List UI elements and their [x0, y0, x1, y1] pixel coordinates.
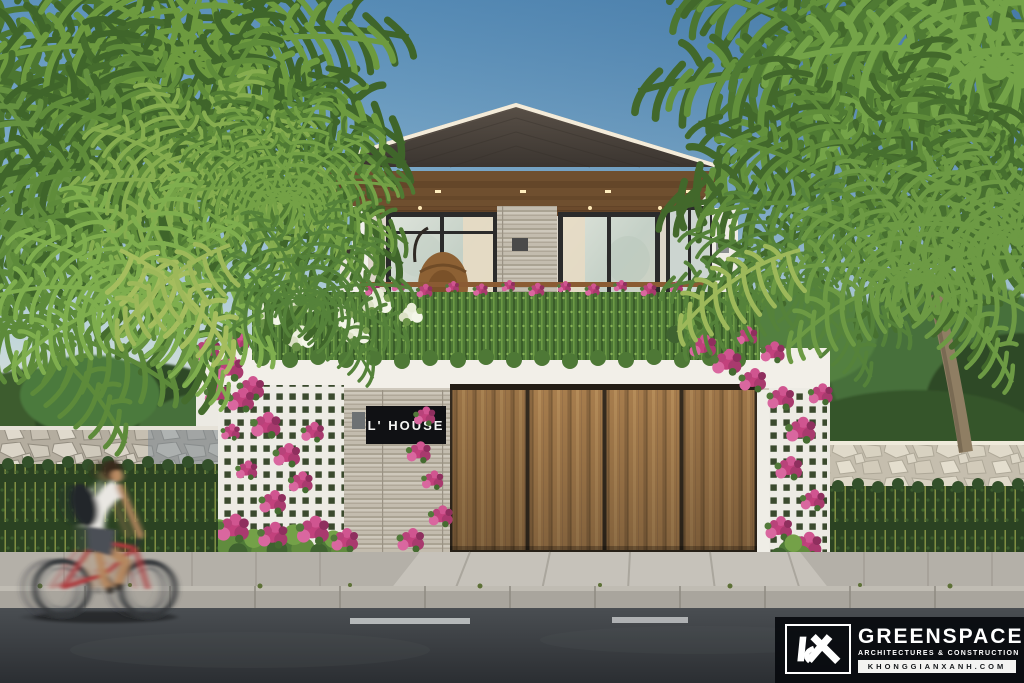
- lane-marking: [350, 618, 470, 624]
- scene-graphics: L' HOUSE: [0, 0, 1024, 683]
- architectural-render: L' HOUSE: [0, 0, 1024, 683]
- wall-sconce: [512, 238, 528, 251]
- watermark-brand: GREENSPACE: [858, 626, 1016, 647]
- intercom-box: [352, 412, 365, 429]
- hedge-right: [830, 478, 1024, 562]
- watermark-tagline: ARCHITECTURES & CONSTRUCTION: [858, 650, 1016, 657]
- watermark-website: KHONGGIANXANH.COM: [858, 660, 1016, 673]
- lane-marking: [612, 617, 688, 623]
- garage-door: [450, 384, 757, 554]
- watermark: GREENSPACE ARCHITECTURES & CONSTRUCTION …: [775, 617, 1024, 683]
- kx-monogram-icon: [785, 624, 851, 674]
